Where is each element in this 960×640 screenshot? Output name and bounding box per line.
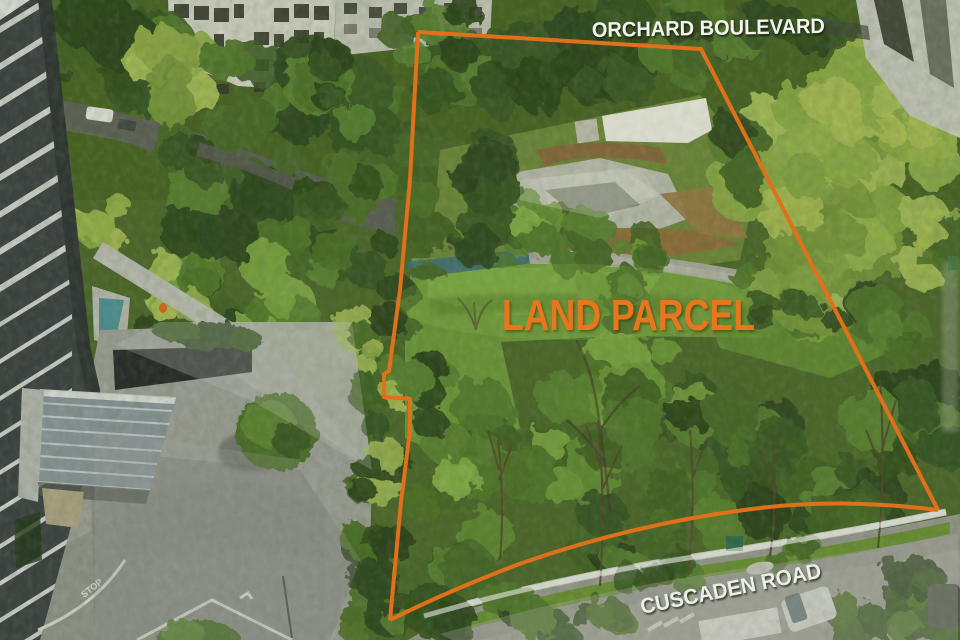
svg-text:LAND PARCEL: LAND PARCEL [502, 291, 755, 340]
svg-text:ORCHARD BOULEVARD: ORCHARD BOULEVARD [592, 15, 825, 42]
